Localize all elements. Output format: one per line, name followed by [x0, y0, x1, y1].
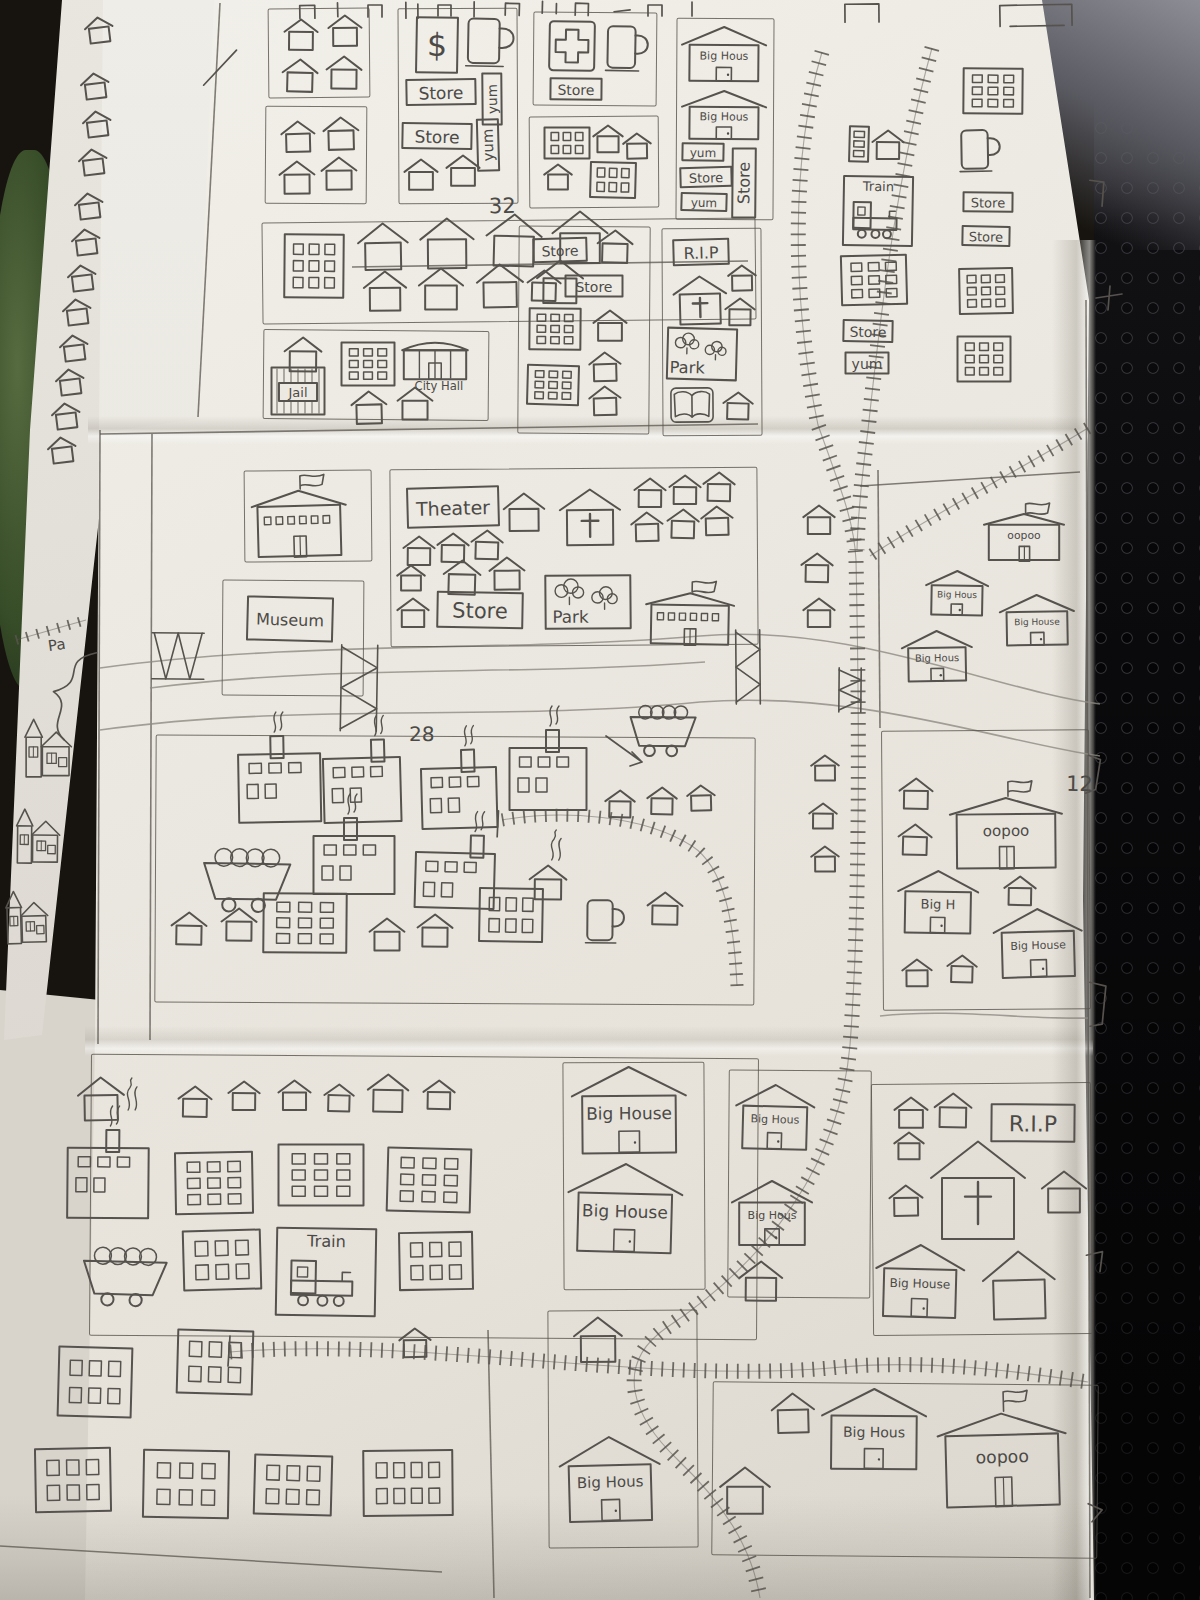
house-icon	[871, 129, 905, 161]
city-block-outline	[222, 580, 365, 697]
church-icon	[10, 808, 65, 868]
svg-text:oopoo: oopoo	[1007, 529, 1041, 542]
house-icon	[60, 296, 93, 327]
apartment-building-icon	[362, 1449, 455, 1518]
pencil-fragment	[35, 651, 96, 693]
svg-text:Train: Train	[862, 179, 894, 195]
city-block-outline	[881, 729, 1091, 1010]
apartment-building-icon	[956, 335, 1012, 383]
svg-text:Big House: Big House	[1014, 617, 1060, 628]
svg-text:Big Hous: Big Hous	[915, 652, 960, 664]
yum-sign: yum	[844, 351, 890, 375]
church-icon	[18, 718, 76, 782]
apartment-building-icon	[141, 1448, 230, 1520]
big-house-icon: Big Hous	[926, 569, 989, 616]
city-block-outline	[529, 116, 660, 209]
pencil-fragment	[1096, 286, 1156, 326]
house-icon	[82, 14, 115, 45]
pencil-fragment	[1000, 0, 1061, 41]
apartment-building-icon	[958, 267, 1015, 316]
pencil-fragment	[1085, 1251, 1146, 1293]
house-icon	[65, 262, 98, 293]
city-block-outline	[727, 1070, 872, 1299]
svg-text:Store: Store	[971, 195, 1006, 210]
pencil-fragment	[1090, 980, 1150, 1021]
house-icon	[802, 597, 836, 628]
apartment-building-icon	[839, 253, 908, 307]
house-icon	[78, 70, 111, 101]
bridge-icon	[836, 666, 864, 714]
school-icon: oopoo	[984, 502, 1064, 562]
pencil-fragment	[1085, 755, 1146, 797]
hand-drawn-town-map-photo: $StoreyumStoreyumStoreBig HousBig Housyu…	[0, 0, 1200, 1600]
house-icon	[802, 504, 836, 535]
house-icon	[69, 226, 102, 257]
apartment-building-icon	[252, 1453, 334, 1517]
big-house-icon: Big Hous	[902, 629, 973, 682]
store-sign: Store	[961, 225, 1011, 248]
train-station-icon: Train	[841, 174, 914, 247]
house-icon	[49, 400, 82, 431]
city-block-outline	[244, 469, 373, 562]
city-block-outline	[562, 1062, 705, 1291]
svg-text:Store: Store	[969, 229, 1004, 245]
pencil-fragment	[845, 0, 905, 40]
svg-text:Store: Store	[849, 324, 886, 341]
pencil-fragment	[203, 49, 264, 91]
apartment-building-icon	[962, 67, 1024, 116]
svg-text:yum: yum	[852, 356, 883, 372]
city-block-outline	[263, 329, 490, 421]
house-icon	[808, 802, 838, 830]
house-icon	[57, 332, 90, 363]
city-block-outline	[389, 467, 758, 648]
city-block-outline	[871, 1082, 1093, 1336]
store-sign: Store	[842, 319, 894, 344]
big-house-icon: Big House	[1000, 593, 1075, 646]
city-block-outline	[517, 226, 650, 435]
house-icon	[800, 552, 835, 584]
map-drawings-layer: $StoreyumStoreyumStoreBig HousBig Housyu…	[0, 0, 1200, 1600]
house-icon	[45, 434, 78, 465]
city-block-outline	[711, 1381, 1099, 1558]
svg-text:Big Hous: Big Hous	[937, 589, 977, 600]
pencil-fragment	[228, 1336, 288, 1376]
bridge-icon	[150, 630, 206, 682]
church-icon	[0, 889, 53, 948]
apartment-building-icon	[33, 1446, 112, 1513]
city-block-outline	[268, 8, 371, 99]
mug-icon	[958, 126, 1003, 179]
apartment-building-icon	[848, 125, 871, 164]
city-block-outline	[533, 11, 658, 106]
house-icon	[76, 146, 109, 177]
house-icon	[53, 366, 86, 397]
city-block-outline	[265, 106, 368, 205]
map-number-label: Pa	[47, 635, 67, 655]
house-icon	[72, 190, 105, 221]
house-icon	[80, 108, 113, 139]
house-icon	[810, 845, 840, 873]
pencil-fragment	[1090, 180, 1150, 221]
city-block-outline	[154, 734, 755, 1005]
city-block-outline	[661, 228, 762, 437]
city-block-outline	[675, 18, 774, 221]
store-sign: Store	[962, 191, 1014, 213]
house-icon	[810, 754, 840, 782]
city-block-outline	[547, 1310, 698, 1549]
city-block-outline	[397, 8, 518, 205]
apartment-building-icon	[56, 1345, 134, 1419]
